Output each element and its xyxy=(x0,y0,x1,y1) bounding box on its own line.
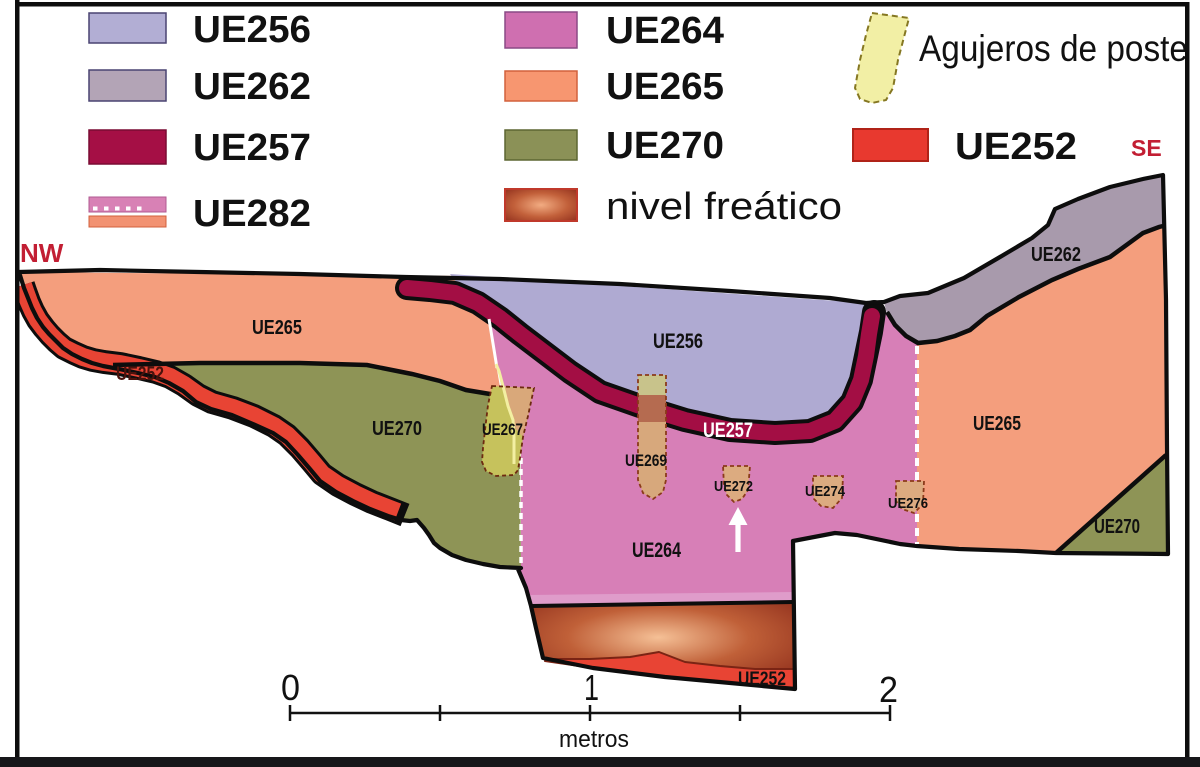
svg-text:UE252: UE252 xyxy=(738,669,786,690)
svg-text:UE265: UE265 xyxy=(252,317,302,339)
svg-text:UE262: UE262 xyxy=(193,66,311,108)
svg-text:UE264: UE264 xyxy=(632,539,681,562)
svg-text:UE265: UE265 xyxy=(973,413,1021,435)
svg-text:UE272: UE272 xyxy=(714,478,753,495)
svg-text:UE276: UE276 xyxy=(888,495,928,512)
svg-text:metros: metros xyxy=(559,726,629,753)
svg-text:UE265: UE265 xyxy=(606,66,724,108)
svg-text:UE257: UE257 xyxy=(193,127,311,169)
svg-text:UE262: UE262 xyxy=(1031,244,1081,266)
svg-text:UE252: UE252 xyxy=(955,126,1077,168)
svg-text:nivel freático: nivel freático xyxy=(606,186,842,228)
svg-text:0: 0 xyxy=(281,667,300,708)
svg-text:UE267: UE267 xyxy=(482,420,523,439)
svg-text:UE257: UE257 xyxy=(703,419,753,442)
svg-text:UE282: UE282 xyxy=(193,193,311,235)
svg-text:1: 1 xyxy=(584,667,599,708)
svg-text:UE256: UE256 xyxy=(653,330,703,353)
svg-text:UE264: UE264 xyxy=(606,10,724,52)
svg-text:SE: SE xyxy=(1131,135,1162,161)
svg-text:UE274: UE274 xyxy=(805,483,846,500)
svg-text:UE252: UE252 xyxy=(116,364,164,385)
svg-text:UE270: UE270 xyxy=(1094,516,1140,538)
svg-text:UE270: UE270 xyxy=(606,125,724,167)
svg-text:NW: NW xyxy=(20,238,64,268)
svg-text:Agujeros de poste: Agujeros de poste xyxy=(919,28,1188,69)
svg-text:UE270: UE270 xyxy=(372,418,422,440)
svg-text:UE256: UE256 xyxy=(193,9,311,51)
svg-text:UE269: UE269 xyxy=(625,451,667,470)
svg-text:2: 2 xyxy=(879,669,898,710)
